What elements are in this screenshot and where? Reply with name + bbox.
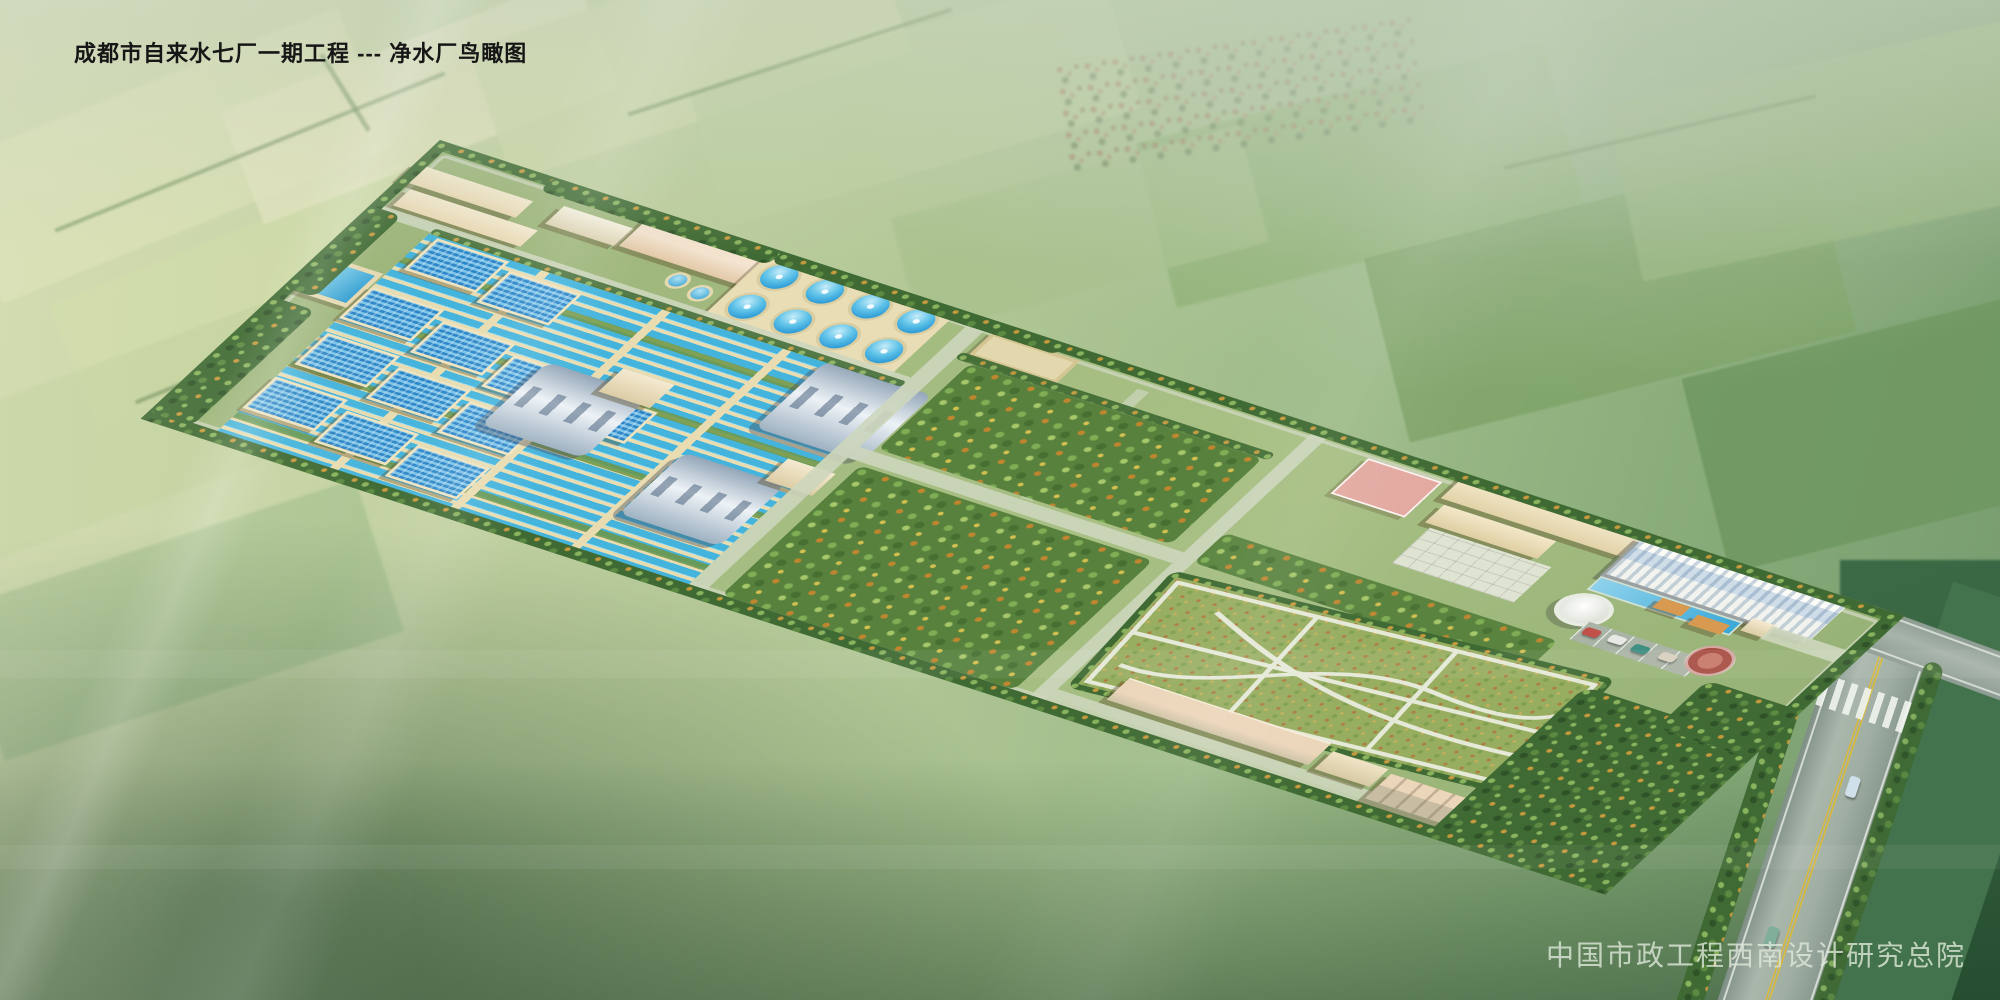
design-institute-credit: 中国市政工程西南设计研究总院 bbox=[1546, 934, 1966, 974]
aerial-rendering: 成都市自来水七厂一期工程 --- 净水厂鸟瞰图 中国市政工程西南设计研究总院 bbox=[0, 0, 2000, 1000]
car bbox=[1580, 627, 1603, 639]
car bbox=[1656, 651, 1679, 663]
car bbox=[1606, 634, 1629, 646]
covered-filter-unit bbox=[476, 271, 582, 326]
farm-field bbox=[1606, 18, 2000, 281]
rendering-title: 成都市自来水七厂一期工程 --- 净水厂鸟瞰图 bbox=[74, 36, 527, 68]
skylight-strip bbox=[650, 476, 754, 522]
car bbox=[1844, 775, 1861, 798]
car bbox=[1629, 643, 1652, 655]
